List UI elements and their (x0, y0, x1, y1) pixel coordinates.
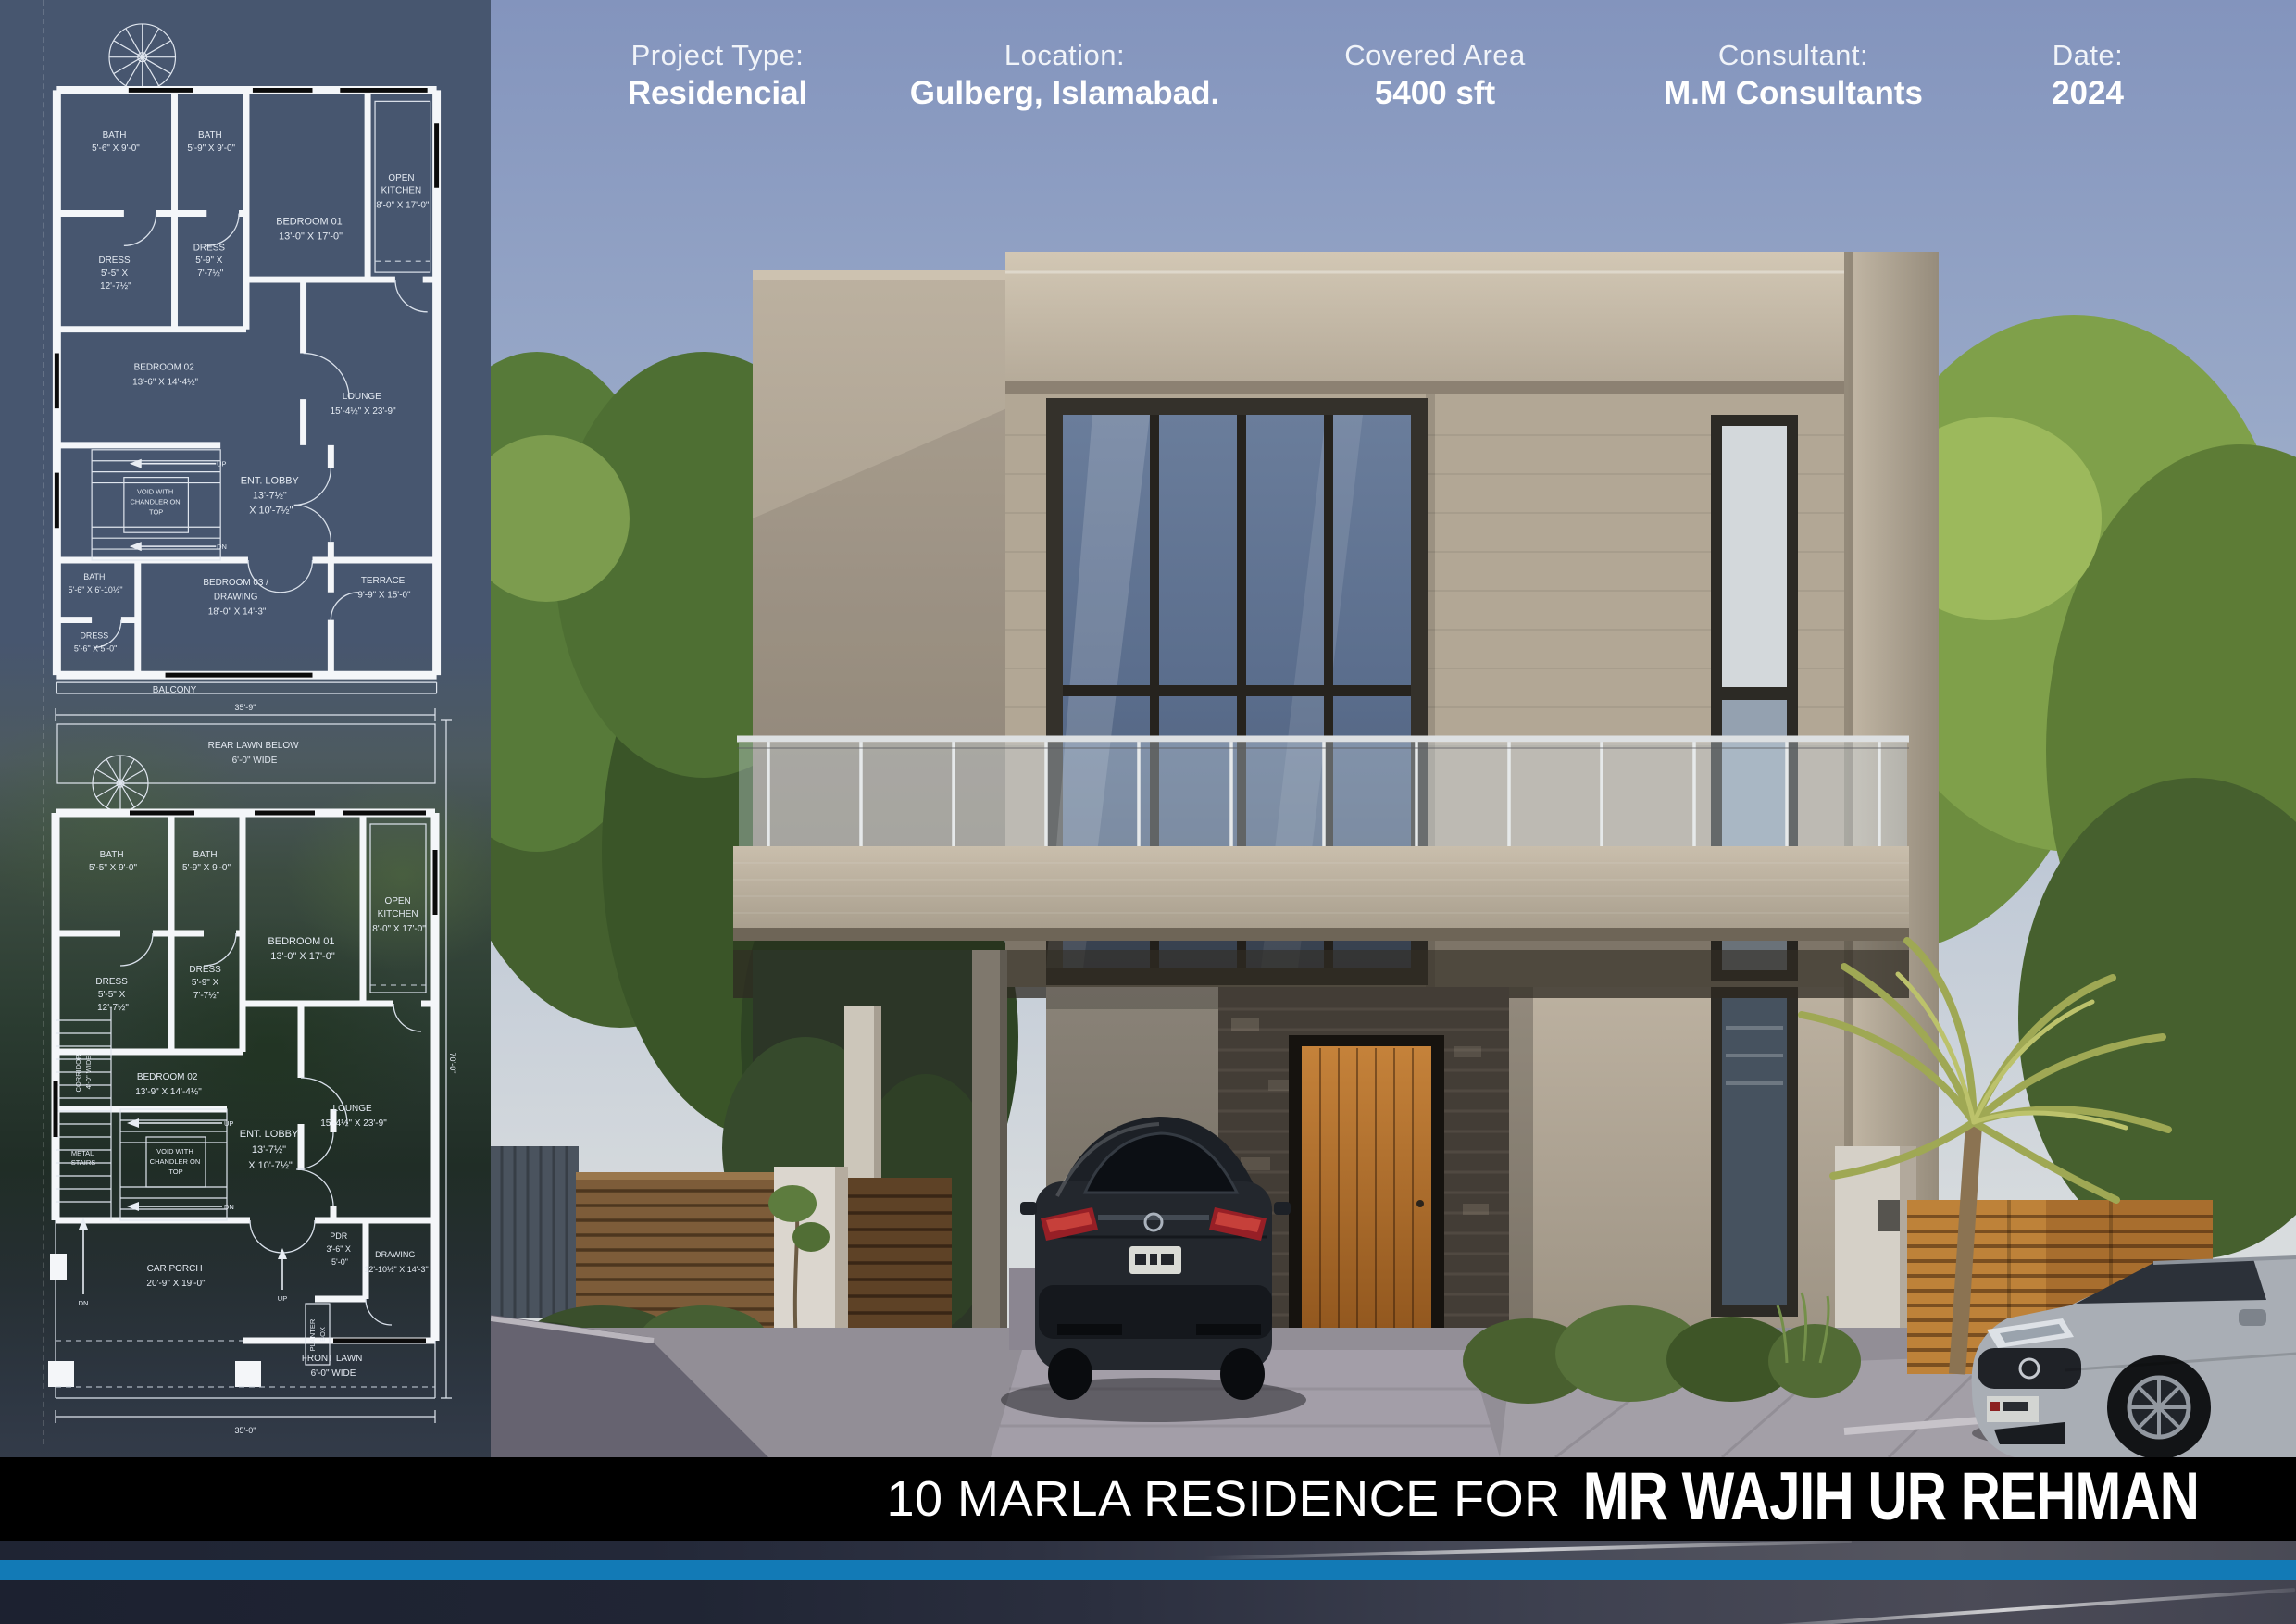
room-label-bedroom2: BEDROOM 02 13'-9" X 14'-4½" (135, 1072, 202, 1097)
lane-marking (1204, 1541, 1852, 1560)
consultant-value: M.M Consultants (1664, 75, 1923, 112)
room-label-bath-a: BATH 5'-6" X 9'-0" (92, 131, 140, 154)
room-label-lounge: LOUNGE 15'-4½" X 23'-9" (331, 392, 396, 417)
svg-text:70'-0": 70'-0" (448, 1053, 457, 1074)
room-label-bath-b: BATH 5'-9" X 9'-0" (187, 131, 235, 154)
room-label-bedroom1: BEDROOM 01 13'-0" X 17'-0" (276, 216, 345, 242)
room-label-bath-a: BATH 5'-5" X 9'-0" (89, 850, 138, 873)
room-label-metal-stairs: METAL STAIRS (71, 1149, 96, 1167)
date-label: Date: (2052, 39, 2124, 72)
svg-text:DN: DN (224, 1203, 234, 1211)
client-name: MR WAJIH UR REHMAN (1583, 1457, 2199, 1535)
room-label-rear-lawn: REAR LAWN BELOW 6'-0" WIDE (208, 741, 302, 766)
room-label-balcony: BALCONY (153, 685, 197, 695)
svg-text:DN: DN (217, 543, 227, 551)
project-type-label: Project Type: (628, 39, 808, 72)
room-label-lobby: ENT. LOBBY 13'-7½" X 10'-7½" (241, 476, 302, 517)
svg-text:UP: UP (224, 1119, 233, 1128)
ground-floor-plan: 35'-9" 35'-0" 70'-0" REAR LAWN BELOW 6'-… (28, 702, 458, 1443)
room-label-void: VOID WITH CHANDLER ON TOP (150, 1147, 203, 1176)
svg-text:UP: UP (278, 1294, 287, 1303)
narrow-window-lower (1711, 987, 1798, 1317)
render-scene (491, 0, 2296, 1457)
svg-text:35'-9": 35'-9" (235, 703, 256, 712)
accent-stripe (0, 1560, 2296, 1580)
header-date: Date: 2024 (2052, 39, 2124, 112)
title-text: 10 MARLA RESIDENCE FOR (886, 1470, 1560, 1528)
room-label-pdr: PDR 3'-6" X 5'-0" (327, 1231, 354, 1267)
plans-sidebar: UP DN BATH 5'-6" X 9'-0" BATH 5'-9" X 9'… (0, 0, 491, 1457)
header-consultant: Consultant: M.M Consultants (1664, 39, 1923, 112)
room-label-bath-c: BATH 5'-6" X 6'-10½" (69, 572, 123, 594)
room-label-lobby: ENT. LOBBY 13'-7½" X 10'-7½" (240, 1129, 301, 1171)
balcony-railing (737, 739, 1909, 846)
gate-pillar-marker (235, 1361, 261, 1387)
balcony-slab (733, 846, 1909, 950)
room-label-kitchen: OPEN KITCHEN 8'-0" X 17'-0" (372, 896, 426, 934)
room-label-void: VOID WITH CHANDLER ON TOP (131, 487, 182, 516)
location-value: Gulberg, Islamabad. (910, 75, 1220, 112)
spiral-stair-icon (93, 756, 148, 811)
date-value: 2024 (2052, 75, 2124, 112)
room-label-car-porch: CAR PORCH 20'-9" X 19'-0" (146, 1264, 206, 1289)
intercom-box (1878, 1200, 1900, 1231)
header-location: Location: Gulberg, Islamabad. (910, 39, 1220, 112)
consultant-label: Consultant: (1664, 39, 1923, 72)
entrance-door (1289, 1035, 1444, 1352)
room-label-bedroom1: BEDROOM 01 13'-0" X 17'-0" (268, 936, 337, 962)
photo-strip-upper (0, 1541, 2296, 1560)
room-label-drawing: DRAWING 12'-10½" X 14'-3" (364, 1250, 428, 1274)
header-project-type: Project Type: Residencial (628, 39, 808, 112)
room-label-bedroom2: BEDROOM 02 13'-6" X 14'-4½" (132, 362, 198, 387)
covered-area-label: Covered Area (1344, 39, 1526, 72)
svg-text:UP: UP (217, 460, 226, 468)
gate-pillar-marker (48, 1361, 74, 1387)
room-label-front-lawn: FRONT LAWN 6'-0" WIDE (302, 1354, 365, 1379)
room-label-bath-b: BATH 5'-9" X 9'-0" (182, 850, 231, 873)
room-label-dress-a: DRESS 5'-5" X 12'-7½" (95, 977, 130, 1013)
house-render-photo (491, 0, 2296, 1457)
location-label: Location: (910, 39, 1220, 72)
room-label-bedroom3: BEDROOM 03 / DRAWING 18'-0" X 14'-3" (203, 578, 270, 618)
room-label-dress-b: DRESS 5'-9" X 7'-7½" (193, 243, 228, 279)
photo-strip-lower (0, 1580, 2296, 1624)
covered-area-value: 5400 sft (1344, 75, 1526, 112)
room-label-dress-b: DRESS 5'-9" X 7'-7½" (189, 965, 223, 1001)
project-type-value: Residencial (628, 75, 808, 112)
project-info-header: Project Type: Residencial Location: Gulb… (0, 0, 2296, 130)
title-bar: 10 MARLA RESIDENCE FOR MR WAJIH UR REHMA… (0, 1457, 2296, 1541)
svg-text:35'-0": 35'-0" (235, 1426, 256, 1435)
lane-marking (1714, 1588, 2296, 1624)
room-label-dress-a: DRESS 5'-5" X 12'-7½" (98, 256, 132, 292)
room-label-planter: PLANTER BOX (308, 1318, 327, 1352)
boundary-pillar (50, 1254, 67, 1280)
room-label-terrace: TERRACE 9'-9" X 15'-0" (357, 576, 411, 601)
svg-text:DN: DN (79, 1299, 89, 1307)
header-covered-area: Covered Area 5400 sft (1344, 39, 1526, 112)
room-label-kitchen: OPEN KITCHEN 8'-0" X 17'-0" (376, 173, 430, 211)
